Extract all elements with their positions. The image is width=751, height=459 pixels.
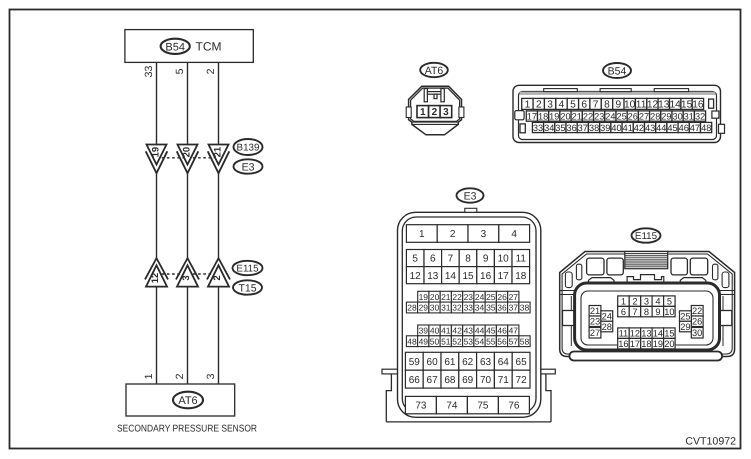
svg-text:27: 27 xyxy=(590,328,600,338)
svg-text:12: 12 xyxy=(630,329,640,339)
svg-text:2: 2 xyxy=(632,297,637,307)
svg-text:30: 30 xyxy=(672,111,682,121)
svg-text:6: 6 xyxy=(581,100,587,111)
svg-text:2: 2 xyxy=(450,229,456,240)
svg-text:E115: E115 xyxy=(635,231,658,242)
svg-text:21: 21 xyxy=(590,306,600,316)
svg-text:54: 54 xyxy=(475,336,485,346)
svg-text:15: 15 xyxy=(681,100,693,111)
svg-text:41: 41 xyxy=(441,326,451,336)
svg-text:50: 50 xyxy=(430,336,440,346)
svg-text:3: 3 xyxy=(205,373,217,379)
svg-text:16: 16 xyxy=(692,100,704,111)
svg-text:19: 19 xyxy=(419,292,429,302)
svg-text:58: 58 xyxy=(520,336,530,346)
svg-text:23: 23 xyxy=(594,111,604,121)
svg-text:8: 8 xyxy=(465,254,471,265)
svg-text:CVT10972: CVT10972 xyxy=(685,436,736,448)
svg-text:28: 28 xyxy=(602,322,612,332)
svg-text:9: 9 xyxy=(655,307,660,317)
svg-text:2: 2 xyxy=(205,68,217,74)
svg-text:15: 15 xyxy=(462,271,474,282)
svg-text:B54: B54 xyxy=(608,65,627,77)
svg-text:57: 57 xyxy=(509,336,519,346)
svg-text:36: 36 xyxy=(566,123,576,133)
svg-text:42: 42 xyxy=(452,326,462,336)
svg-text:22: 22 xyxy=(692,306,702,316)
svg-text:19: 19 xyxy=(653,339,663,349)
svg-text:62: 62 xyxy=(462,357,474,368)
svg-text:18: 18 xyxy=(515,271,527,282)
svg-text:56: 56 xyxy=(497,336,507,346)
svg-text:59: 59 xyxy=(409,357,421,368)
svg-text:25: 25 xyxy=(680,311,690,321)
svg-text:45: 45 xyxy=(667,123,677,133)
svg-text:40: 40 xyxy=(611,123,621,133)
svg-text:72: 72 xyxy=(516,375,528,386)
svg-text:49: 49 xyxy=(419,336,429,346)
svg-text:32: 32 xyxy=(452,303,462,313)
svg-text:43: 43 xyxy=(464,326,474,336)
svg-text:17: 17 xyxy=(498,271,510,282)
svg-text:3: 3 xyxy=(644,297,649,307)
svg-text:12: 12 xyxy=(647,100,659,111)
svg-text:24: 24 xyxy=(602,311,612,321)
svg-text:68: 68 xyxy=(444,375,456,386)
svg-text:8: 8 xyxy=(644,307,649,317)
svg-text:44: 44 xyxy=(656,123,666,133)
svg-text:25: 25 xyxy=(486,292,496,302)
svg-text:33: 33 xyxy=(533,123,543,133)
svg-text:3: 3 xyxy=(181,275,192,280)
svg-text:19: 19 xyxy=(150,147,161,158)
svg-text:3: 3 xyxy=(443,107,449,118)
svg-text:T15: T15 xyxy=(238,282,256,294)
svg-text:25: 25 xyxy=(616,111,626,121)
svg-text:6: 6 xyxy=(621,307,626,317)
svg-text:38: 38 xyxy=(520,303,530,313)
svg-text:70: 70 xyxy=(480,375,492,386)
svg-text:43: 43 xyxy=(645,123,655,133)
svg-text:74: 74 xyxy=(446,401,458,412)
svg-text:7: 7 xyxy=(448,254,454,265)
svg-text:2: 2 xyxy=(174,373,186,379)
svg-text:E115: E115 xyxy=(236,264,259,275)
svg-text:AT6: AT6 xyxy=(178,395,197,407)
svg-text:5: 5 xyxy=(667,297,672,307)
svg-text:20: 20 xyxy=(664,339,674,349)
svg-text:15: 15 xyxy=(664,329,674,339)
svg-text:E3: E3 xyxy=(464,190,477,202)
svg-text:28: 28 xyxy=(650,111,660,121)
svg-text:34: 34 xyxy=(544,123,554,133)
svg-text:53: 53 xyxy=(464,336,474,346)
svg-text:4: 4 xyxy=(511,229,517,240)
svg-text:42: 42 xyxy=(634,123,644,133)
svg-text:27: 27 xyxy=(509,292,519,302)
svg-text:3: 3 xyxy=(481,229,487,240)
svg-text:35: 35 xyxy=(555,123,565,133)
svg-text:34: 34 xyxy=(475,303,485,313)
svg-text:1: 1 xyxy=(419,229,425,240)
svg-text:69: 69 xyxy=(462,375,474,386)
svg-text:26: 26 xyxy=(692,317,702,327)
svg-text:46: 46 xyxy=(679,123,689,133)
svg-text:26: 26 xyxy=(497,292,507,302)
svg-text:1: 1 xyxy=(143,373,155,379)
svg-text:41: 41 xyxy=(623,123,633,133)
svg-text:B139: B139 xyxy=(237,143,260,154)
svg-text:13: 13 xyxy=(427,271,439,282)
svg-text:24: 24 xyxy=(475,292,485,302)
svg-text:13: 13 xyxy=(658,100,670,111)
svg-text:7: 7 xyxy=(632,307,637,317)
svg-text:66: 66 xyxy=(409,375,421,386)
svg-text:22: 22 xyxy=(452,292,462,302)
svg-text:65: 65 xyxy=(516,357,528,368)
svg-text:21: 21 xyxy=(441,292,451,302)
svg-text:47: 47 xyxy=(509,326,519,336)
svg-text:9: 9 xyxy=(615,100,621,111)
svg-text:39: 39 xyxy=(600,123,610,133)
svg-text:13: 13 xyxy=(641,329,651,339)
svg-text:11: 11 xyxy=(516,254,527,265)
svg-text:24: 24 xyxy=(605,111,615,121)
svg-text:5: 5 xyxy=(412,254,418,265)
svg-text:10: 10 xyxy=(664,307,674,317)
svg-text:26: 26 xyxy=(628,111,638,121)
svg-text:36: 36 xyxy=(497,303,507,313)
svg-text:10: 10 xyxy=(498,254,510,265)
svg-text:31: 31 xyxy=(684,111,694,121)
svg-text:8: 8 xyxy=(604,100,610,111)
svg-text:64: 64 xyxy=(498,357,510,368)
svg-text:55: 55 xyxy=(486,336,496,346)
svg-text:23: 23 xyxy=(590,317,600,327)
svg-text:35: 35 xyxy=(486,303,496,313)
svg-text:22: 22 xyxy=(583,111,593,121)
svg-text:21: 21 xyxy=(212,146,223,157)
svg-text:60: 60 xyxy=(427,357,439,368)
svg-text:28: 28 xyxy=(407,303,417,313)
svg-text:12: 12 xyxy=(150,273,161,284)
svg-text:5: 5 xyxy=(570,100,576,111)
svg-text:67: 67 xyxy=(427,375,439,386)
svg-text:14: 14 xyxy=(445,271,457,282)
svg-text:38: 38 xyxy=(589,123,599,133)
svg-text:SECONDARY PRESSURE SENSOR: SECONDARY PRESSURE SENSOR xyxy=(117,424,257,435)
svg-text:1: 1 xyxy=(621,297,626,307)
svg-text:44: 44 xyxy=(475,326,485,336)
svg-text:75: 75 xyxy=(477,401,489,412)
svg-text:18: 18 xyxy=(538,111,548,121)
svg-text:14: 14 xyxy=(670,100,682,111)
svg-text:12: 12 xyxy=(410,271,422,282)
svg-text:B54: B54 xyxy=(165,41,185,53)
svg-text:71: 71 xyxy=(498,375,510,386)
svg-text:39: 39 xyxy=(419,326,429,336)
svg-text:30: 30 xyxy=(692,328,702,338)
svg-text:TCM: TCM xyxy=(196,40,222,54)
svg-text:40: 40 xyxy=(430,326,440,336)
svg-text:10: 10 xyxy=(624,100,636,111)
svg-text:19: 19 xyxy=(549,111,559,121)
svg-text:48: 48 xyxy=(701,123,711,133)
svg-text:63: 63 xyxy=(480,357,492,368)
svg-text:29: 29 xyxy=(680,322,690,332)
svg-text:1: 1 xyxy=(525,100,531,111)
svg-text:11: 11 xyxy=(619,329,629,339)
svg-text:29: 29 xyxy=(419,303,429,313)
svg-text:73: 73 xyxy=(415,401,427,412)
svg-text:2: 2 xyxy=(432,107,438,118)
svg-text:9: 9 xyxy=(483,254,489,265)
svg-text:37: 37 xyxy=(509,303,519,313)
svg-text:7: 7 xyxy=(593,100,599,111)
svg-text:51: 51 xyxy=(441,336,451,346)
svg-text:33: 33 xyxy=(143,66,155,78)
svg-text:52: 52 xyxy=(452,336,462,346)
svg-text:61: 61 xyxy=(444,357,456,368)
svg-text:2: 2 xyxy=(536,100,542,111)
svg-text:45: 45 xyxy=(486,326,496,336)
svg-text:31: 31 xyxy=(441,303,451,313)
svg-text:20: 20 xyxy=(181,147,192,158)
svg-text:4: 4 xyxy=(655,297,660,307)
svg-text:21: 21 xyxy=(572,111,582,121)
svg-text:76: 76 xyxy=(508,401,520,412)
svg-text:AT6: AT6 xyxy=(425,65,444,77)
svg-text:46: 46 xyxy=(497,326,507,336)
svg-text:20: 20 xyxy=(430,292,440,302)
svg-text:47: 47 xyxy=(690,123,700,133)
svg-text:33: 33 xyxy=(464,303,474,313)
svg-text:48: 48 xyxy=(407,336,417,346)
svg-text:20: 20 xyxy=(560,111,570,121)
svg-text:1: 1 xyxy=(420,107,426,118)
svg-text:4: 4 xyxy=(559,100,565,111)
svg-text:30: 30 xyxy=(430,303,440,313)
svg-text:6: 6 xyxy=(430,254,436,265)
svg-text:14: 14 xyxy=(653,329,663,339)
svg-text:27: 27 xyxy=(639,111,649,121)
svg-text:29: 29 xyxy=(661,111,671,121)
svg-text:32: 32 xyxy=(695,111,705,121)
svg-text:16: 16 xyxy=(618,339,628,349)
svg-text:23: 23 xyxy=(464,292,474,302)
svg-text:37: 37 xyxy=(578,123,588,133)
svg-text:16: 16 xyxy=(480,271,492,282)
svg-text:3: 3 xyxy=(547,100,553,111)
svg-text:17: 17 xyxy=(527,111,537,121)
svg-text:2: 2 xyxy=(212,275,223,280)
svg-text:E3: E3 xyxy=(242,161,255,173)
svg-text:17: 17 xyxy=(630,339,640,349)
svg-text:18: 18 xyxy=(641,339,651,349)
svg-text:11: 11 xyxy=(636,100,647,111)
svg-text:5: 5 xyxy=(174,68,186,74)
